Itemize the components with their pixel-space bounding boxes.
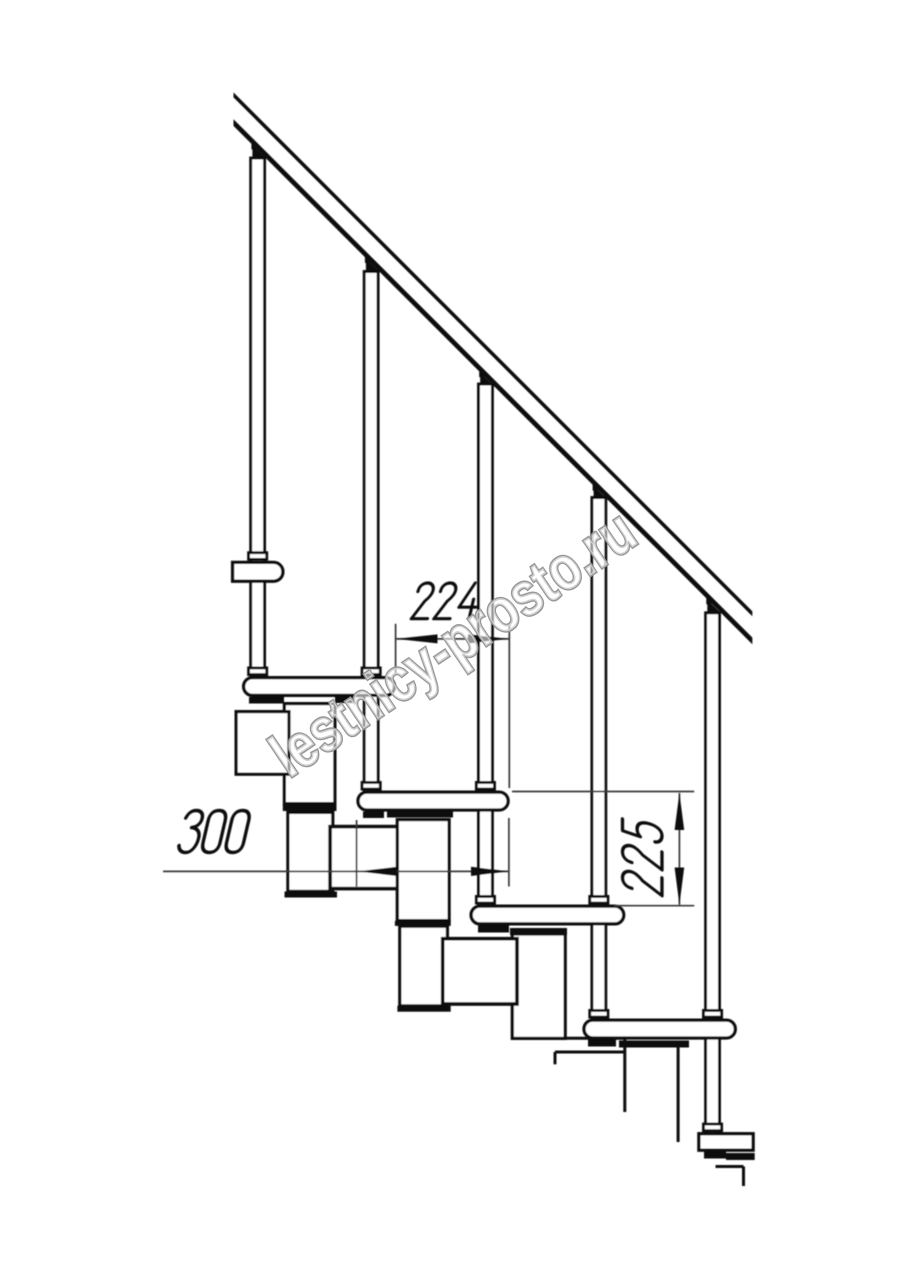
svg-text:lestnicy-prosto.ru: lestnicy-prosto.ru [258, 495, 648, 790]
